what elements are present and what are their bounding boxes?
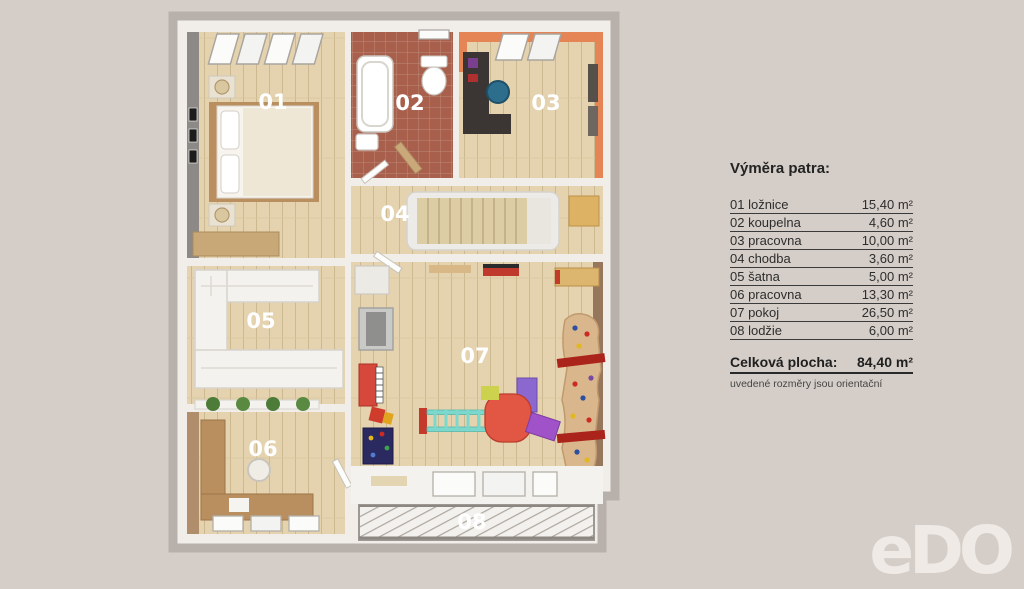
picture-frames (189, 108, 197, 163)
lamp (215, 80, 229, 94)
pillow (221, 111, 239, 149)
legend-row: 06 pracovna 13,30 m² (730, 286, 913, 304)
room-01-label: 01 (258, 90, 287, 114)
room-05-label: 05 (246, 309, 275, 333)
orange-wall (595, 32, 603, 178)
room-04-label: 04 (380, 202, 409, 226)
room-area: 13,30 m² (862, 288, 913, 302)
edo-logo: eDO (869, 518, 1010, 584)
legend-row: 07 pokoj 26,50 m² (730, 304, 913, 322)
office-chair (487, 81, 509, 103)
hall-cabinet (569, 196, 599, 226)
room-area: 5,00 m² (869, 270, 913, 284)
tan-wall (187, 412, 199, 534)
room-area: 15,40 m² (862, 198, 913, 212)
room-02-label: 02 (395, 91, 424, 115)
room-name: 04 chodba (730, 252, 791, 266)
bathroom-window (419, 30, 449, 39)
accent-wall (187, 32, 199, 258)
lamp (215, 208, 229, 222)
orange-wall (459, 32, 603, 42)
room-name: 05 šatna (730, 270, 780, 284)
nightstand (209, 204, 235, 226)
legend-row: 02 koupelna 4,60 m² (730, 214, 913, 232)
room-area: 10,00 m² (862, 234, 913, 248)
room-07-label: 07 (460, 344, 489, 368)
floor-plan: 01 02 03 04 05 06 07 08 (165, 8, 627, 564)
wall-posters (588, 64, 598, 136)
nightstand (209, 76, 235, 98)
room-name: 06 pracovna (730, 288, 802, 302)
legend-row: 04 chodba 3,60 m² (730, 250, 913, 268)
gray-chair (359, 308, 393, 350)
legend-row: 01 ložnice 15,40 m² (730, 196, 913, 214)
room-name: 07 pokoj (730, 306, 779, 320)
sink (356, 134, 378, 150)
toilet (421, 56, 447, 95)
activity-mat (363, 428, 393, 464)
room-name: 03 pracovna (730, 234, 802, 248)
skylight-windows (213, 516, 319, 531)
staircase (407, 192, 559, 250)
wall-shelf (555, 268, 599, 286)
room-area: 4,60 m² (869, 216, 913, 230)
legend-row: 08 lodžie 6,00 m² (730, 322, 913, 340)
window-band (351, 466, 603, 504)
toy-piano (359, 364, 383, 406)
room-area: 3,60 m² (869, 252, 913, 266)
legend-rows: 01 ložnice 15,40 m² 02 koupelna 4,60 m² … (730, 196, 913, 340)
total-area-value: 84,40 m² (857, 354, 913, 370)
pillow (221, 155, 239, 193)
area-legend: Výměra patra: 01 ložnice 15,40 m² 02 kou… (730, 160, 913, 390)
room-name: 08 lodžie (730, 324, 782, 338)
legend-note: uvedené rozměry jsou orientační (730, 378, 913, 390)
room-name: 02 koupelna (730, 216, 801, 230)
room-06-label: 06 (248, 437, 277, 461)
total-area-label: Celková plocha: (730, 354, 837, 370)
room-area: 26,50 m² (862, 306, 913, 320)
legend-row: 03 pracovna 10,00 m² (730, 232, 913, 250)
bathtub (357, 56, 393, 132)
white-table (355, 266, 389, 294)
legend-title: Výměra patra: (730, 160, 913, 177)
dresser (193, 232, 279, 256)
bed (209, 102, 319, 202)
room-08-label: 08 (457, 510, 486, 534)
room-area: 6,00 m² (869, 324, 913, 338)
room-name: 01 ložnice (730, 198, 789, 212)
room-03-label: 03 (531, 91, 560, 115)
total-area-row: Celková plocha: 84,40 m² (730, 354, 913, 374)
wood-mat (429, 265, 471, 273)
office-chair (248, 459, 270, 481)
legend-row: 05 šatna 5,00 m² (730, 268, 913, 286)
